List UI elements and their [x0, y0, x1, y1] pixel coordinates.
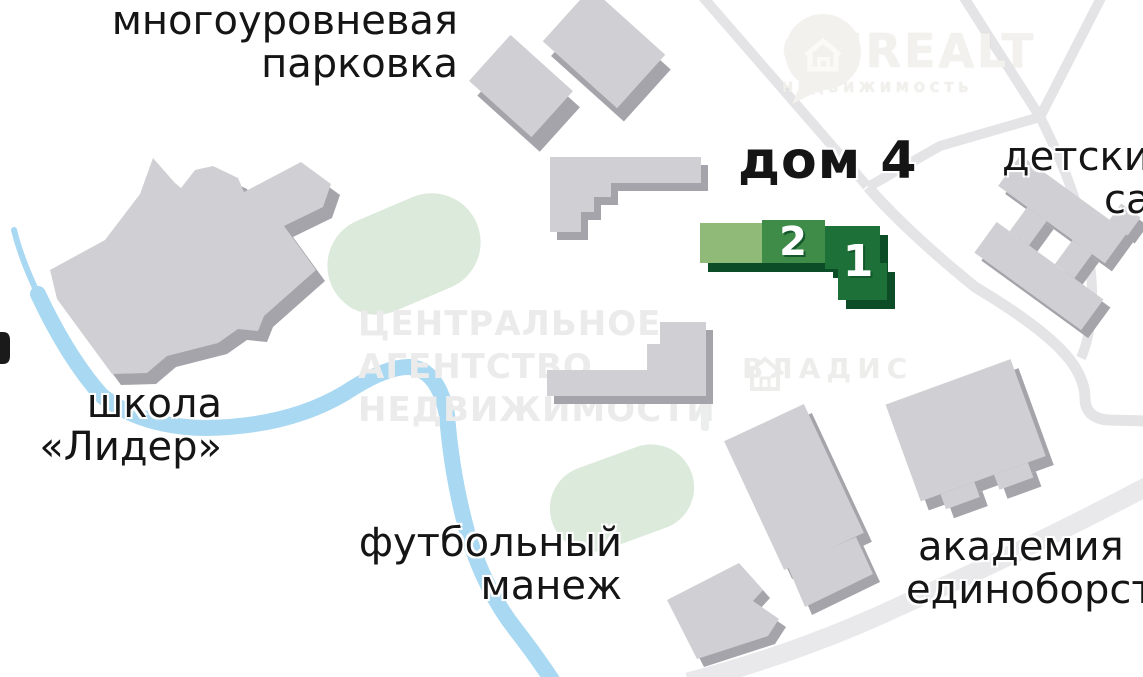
label-school-line1: школа [39, 383, 222, 426]
left-edge-marker [0, 332, 10, 364]
label-school: школа «Лидер» [39, 383, 222, 469]
dom4-block-light[interactable] [700, 223, 762, 263]
label-dom4: дом 4 [738, 134, 918, 190]
center-l-building [550, 157, 701, 232]
map-canvas: ЦЕНТРАЛЬНОЕ АГЕНТСТВО НЕДВИЖИМОСТИ ВЛАДИ… [0, 0, 1143, 677]
label-football: футбольный манеж [359, 522, 622, 608]
label-football-line2: манеж [359, 565, 622, 608]
label-academy-line2: единоборств [906, 569, 1143, 612]
label-school-line2: «Лидер» [39, 426, 222, 469]
school-building [50, 158, 331, 374]
label-kindergarten-line2: сад [1104, 179, 1143, 222]
label-kindergarten-line1: детский [1002, 136, 1143, 179]
label-parking-line2: парковка [112, 43, 458, 86]
dom4-number-2: 2 [779, 219, 807, 265]
middle-l-building [547, 322, 706, 396]
label-academy-line1: академия [918, 526, 1124, 569]
label-parking: многоуровневая парковка [112, 0, 458, 86]
label-football-line1: футбольный [359, 522, 622, 565]
academy-building [886, 359, 1052, 516]
dom4-number-1: 1 [843, 236, 874, 287]
label-parking-line1: многоуровневая [112, 0, 458, 43]
